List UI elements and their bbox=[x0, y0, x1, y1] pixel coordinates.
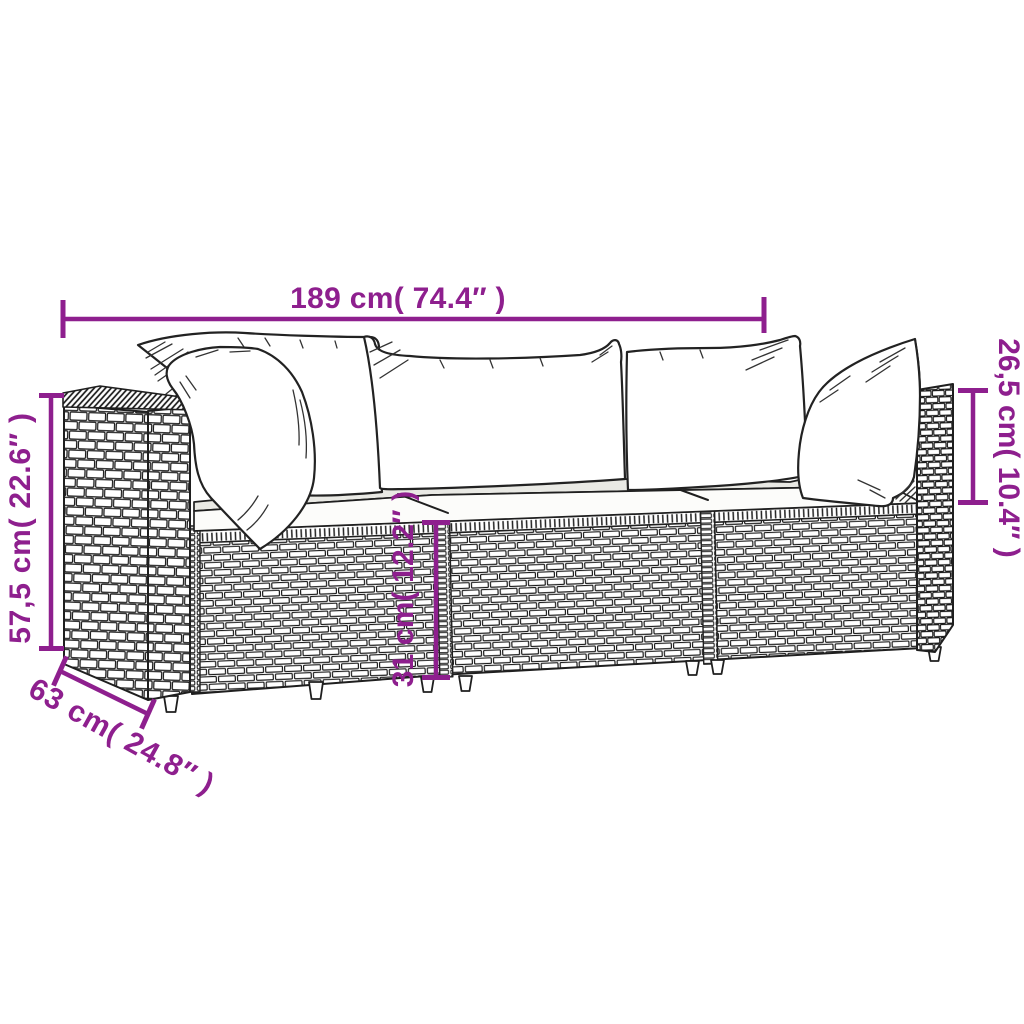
svg-text:57,5 cm( 22.6″ ): 57,5 cm( 22.6″ ) bbox=[4, 412, 37, 644]
svg-text:26,5 cm( 10.4″ ): 26,5 cm( 10.4″ ) bbox=[992, 338, 1024, 558]
svg-text:31 cm( 12.2″ ): 31 cm( 12.2″ ) bbox=[387, 491, 420, 688]
svg-text:189 cm( 74.4″ ): 189 cm( 74.4″ ) bbox=[290, 282, 506, 315]
